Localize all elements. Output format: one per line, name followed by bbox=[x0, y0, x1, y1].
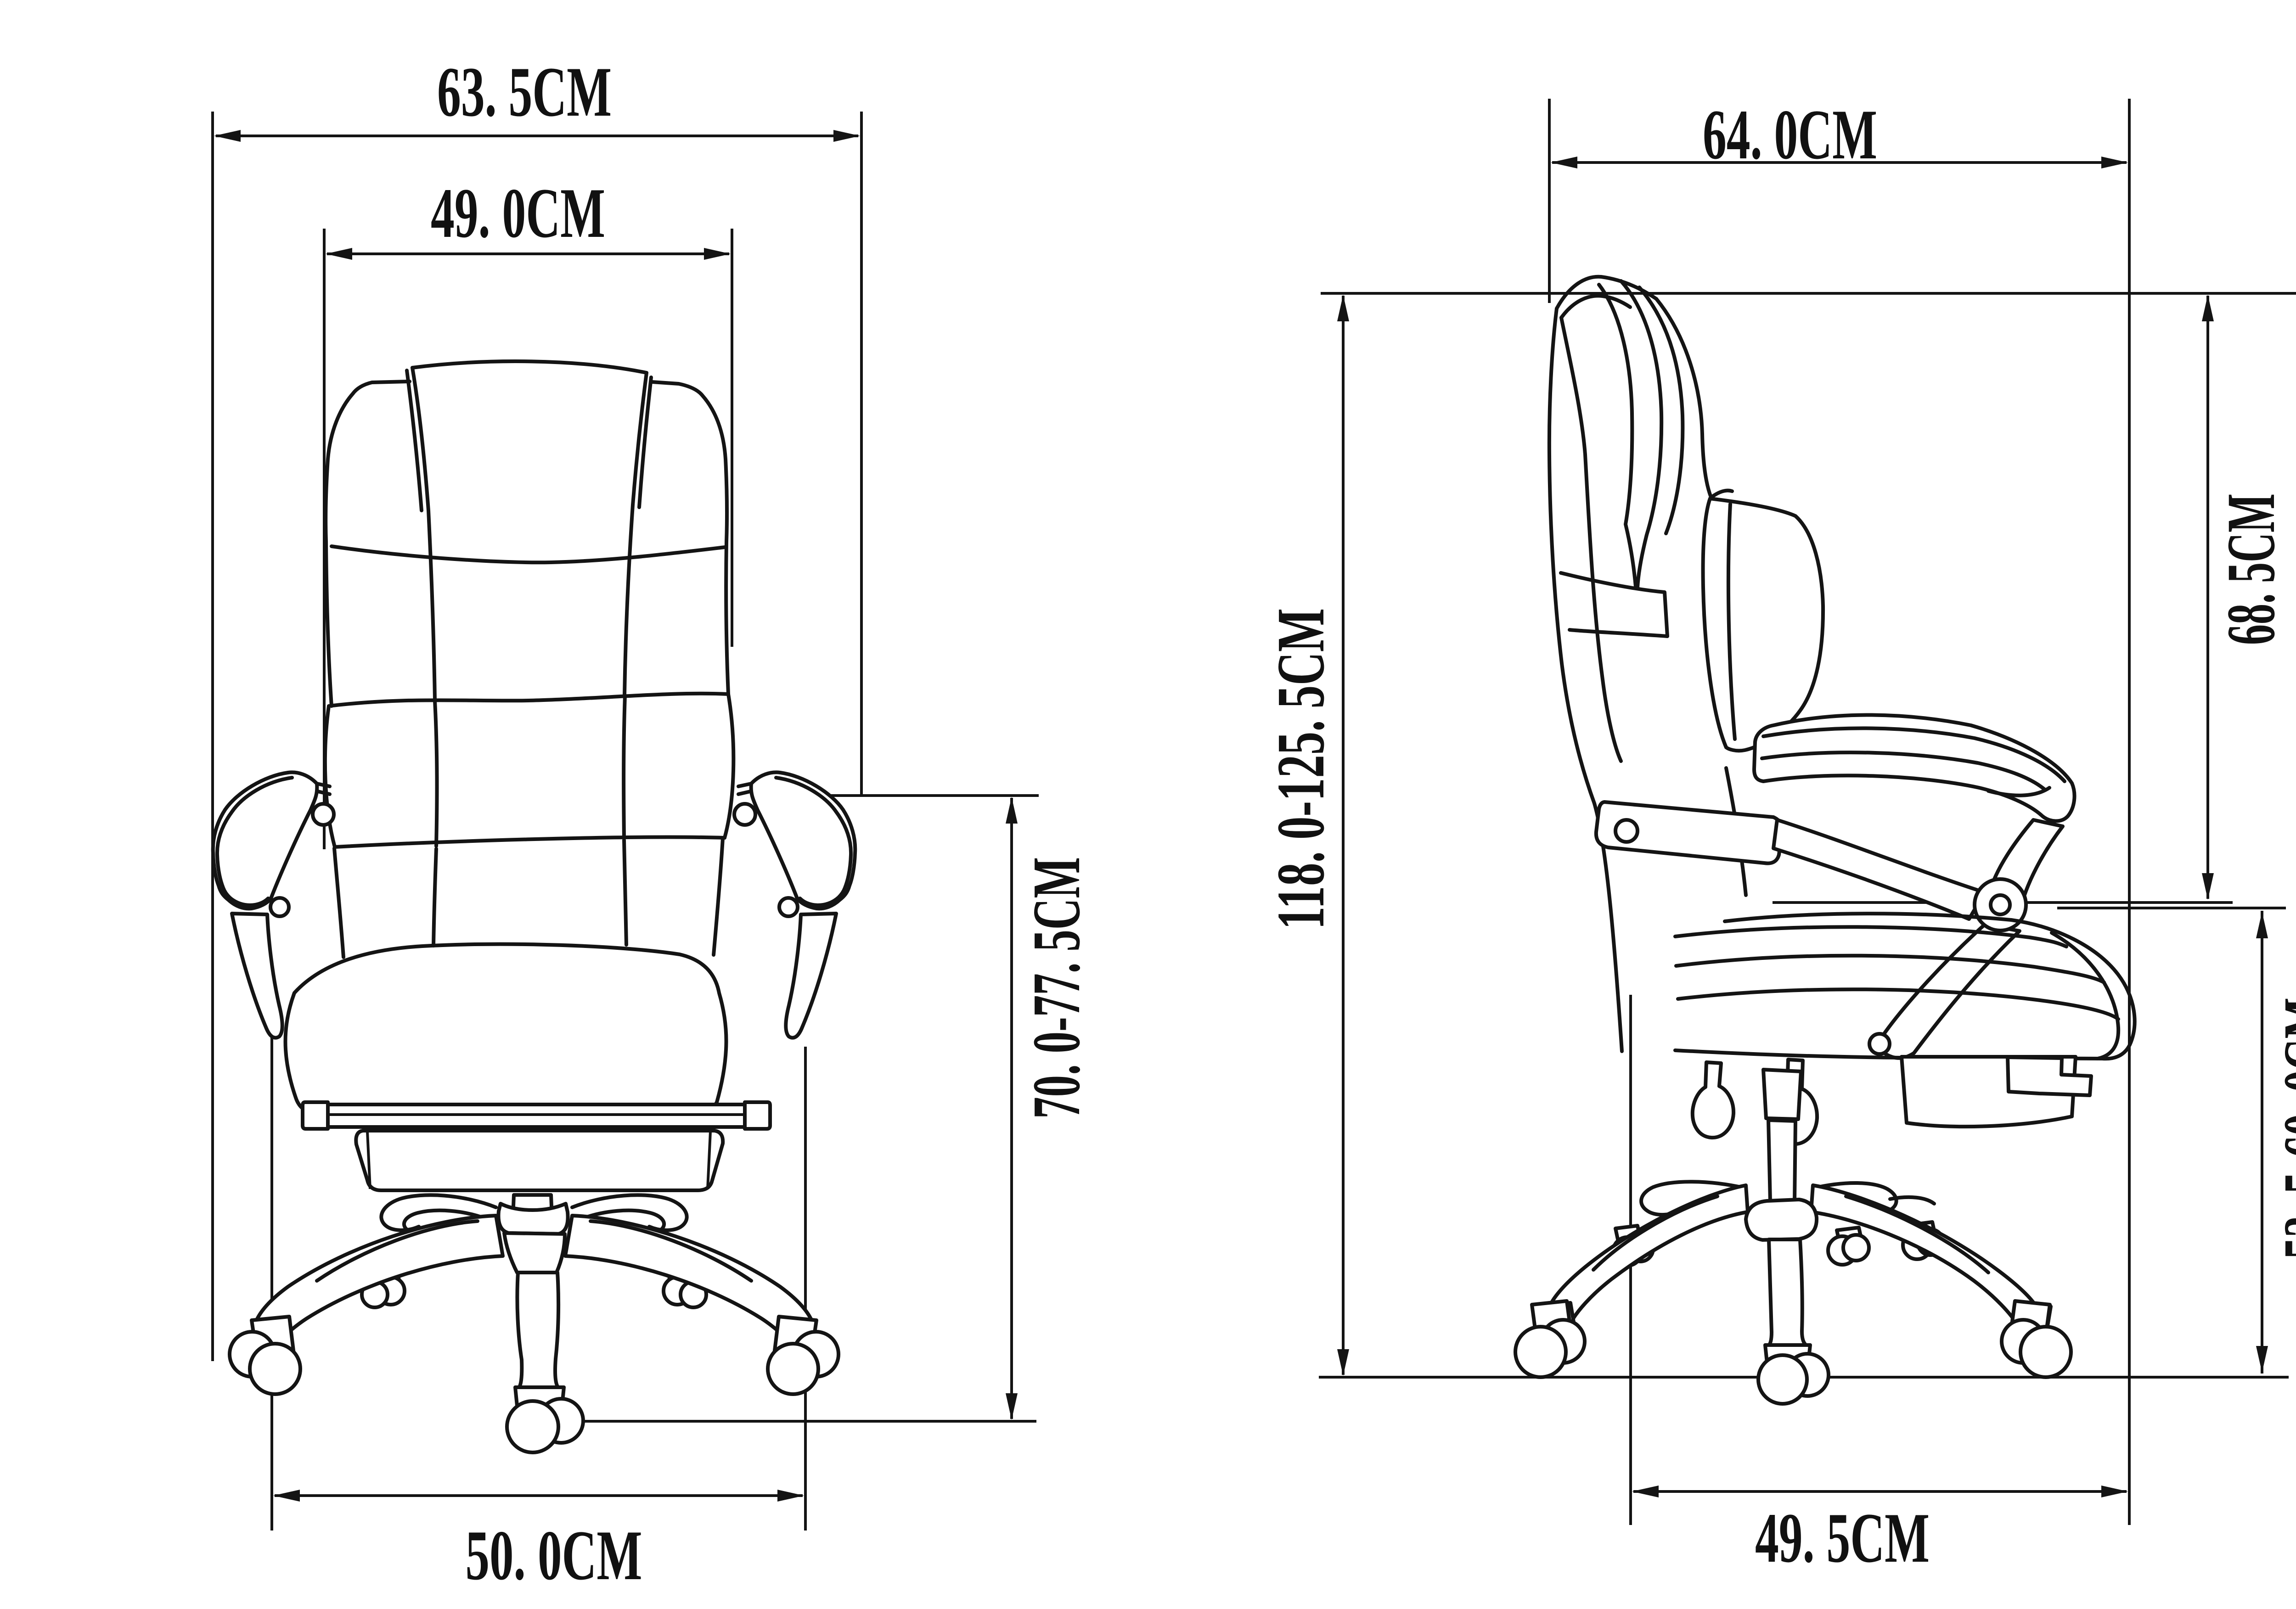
svg-text:53. 5-60. 0CM: 53. 5-60. 0CM bbox=[2271, 998, 2296, 1259]
svg-text:70. 0-77. 5CM: 70. 0-77. 5CM bbox=[1019, 857, 1094, 1119]
svg-text:118. 0-125. 5CM: 118. 0-125. 5CM bbox=[1263, 608, 1339, 930]
svg-text:63. 5CM: 63. 5CM bbox=[437, 52, 612, 131]
svg-text:68. 5CM: 68. 5CM bbox=[2213, 493, 2289, 645]
svg-text:49. 5CM: 49. 5CM bbox=[1755, 1498, 1930, 1577]
svg-text:49. 0CM: 49. 0CM bbox=[431, 174, 605, 252]
svg-text:50. 0CM: 50. 0CM bbox=[466, 1516, 642, 1595]
